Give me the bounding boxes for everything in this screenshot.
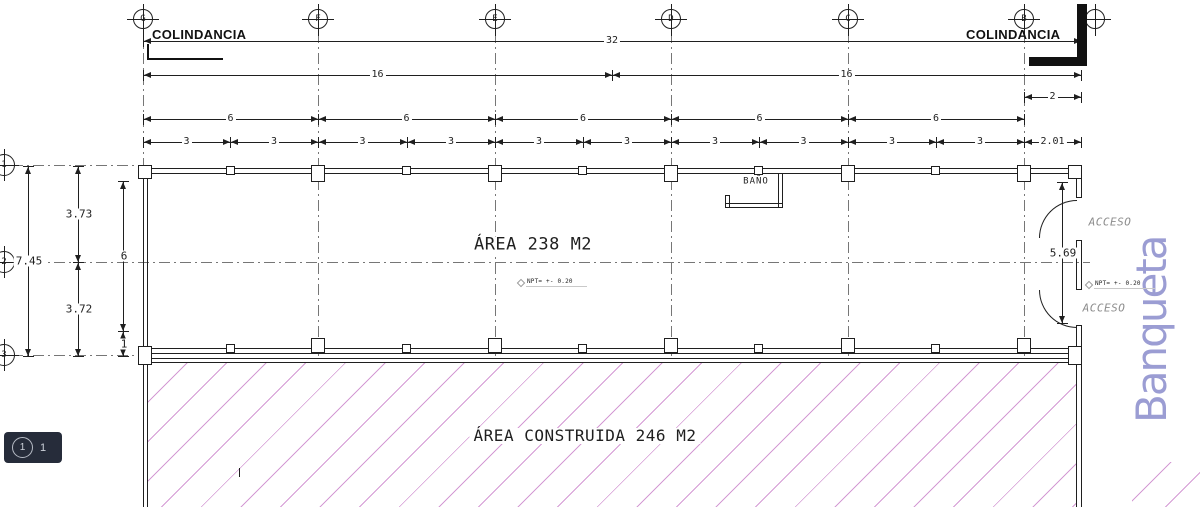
area-construida-label: ÁREA CONSTRUIDA 246 M2	[470, 428, 701, 444]
wall-segment	[1076, 240, 1082, 241]
wall-segment	[143, 353, 1081, 354]
level-marker-icon	[517, 279, 525, 287]
dim-value: 6	[119, 251, 130, 262]
dim-value: 3.72	[64, 304, 95, 315]
wall-segment	[143, 348, 1081, 349]
wall-segment	[725, 195, 726, 207]
dim-extension-tick	[118, 356, 129, 357]
sheet-number-value: 1	[40, 442, 46, 454]
column	[402, 344, 411, 353]
column	[664, 165, 678, 182]
dim-arrow	[311, 139, 318, 145]
grid-centerline-vertical	[848, 32, 849, 356]
dim-arrow	[1017, 139, 1024, 145]
dim-arrow	[311, 116, 318, 122]
banqueta-label: Banqueta	[1127, 243, 1177, 423]
npt-center-text: NPT= +- 0.20	[526, 279, 587, 287]
column	[138, 346, 152, 365]
column	[754, 166, 763, 175]
dim-value: 3	[269, 137, 279, 147]
wall-segment	[1076, 325, 1082, 326]
dim-value: 3	[181, 137, 191, 147]
dim-value: 3	[887, 137, 897, 147]
grid-centerline-vertical	[495, 32, 496, 356]
grid-bubble-tick	[655, 19, 687, 20]
dim-extension-tick	[1081, 92, 1082, 103]
level-marker-icon	[1085, 281, 1093, 289]
acceso-lower-label: ACCESO	[1083, 303, 1126, 314]
wall-segment	[143, 168, 1081, 169]
dim-arrow	[672, 116, 679, 122]
dim-value: 16	[838, 70, 854, 80]
dim-arrow	[605, 72, 612, 78]
dim-extension-tick	[1081, 137, 1082, 148]
grid-bubble-tick	[143, 4, 144, 36]
wall-segment	[778, 173, 779, 207]
column	[931, 166, 940, 175]
column	[1068, 346, 1082, 365]
npt-right-annotation: NPT= +- 0.20	[1086, 281, 1155, 289]
grid-bubble-tick	[4, 246, 5, 278]
dim-value: 3	[710, 137, 720, 147]
dim-arrow	[319, 116, 326, 122]
wall-segment	[725, 203, 783, 204]
dim-arrow	[231, 139, 238, 145]
column	[578, 344, 587, 353]
floorplan-canvas: COLINDANCIA COLINDANCIA ÁREA 238 M2 ÁREA…	[0, 0, 1200, 507]
dim-arrow	[488, 139, 495, 145]
dim-extension-tick	[23, 356, 34, 357]
dim-arrow	[584, 139, 591, 145]
wall-segment	[143, 362, 1081, 363]
dim-arrow	[1059, 183, 1065, 190]
npt-right-text: NPT= +- 0.20	[1094, 281, 1155, 289]
dim-arrow	[400, 139, 407, 145]
dim-value: 6	[401, 114, 411, 124]
grid-centerline-horizontal	[12, 262, 1090, 263]
column	[1017, 165, 1031, 182]
boundary-corner-left-horizontal	[147, 58, 223, 60]
grid-centerline-vertical	[671, 32, 672, 356]
dim-arrow	[75, 263, 81, 270]
dim-arrow	[1025, 139, 1032, 145]
grid-bubble-tick	[495, 4, 496, 36]
dim-arrow	[319, 139, 326, 145]
dim-arrow	[75, 255, 81, 262]
dim-arrow	[144, 139, 151, 145]
dim-arrow	[672, 139, 679, 145]
column	[488, 165, 502, 182]
dim-arrow	[841, 139, 848, 145]
grid-bubble-tick	[318, 4, 319, 36]
dim-arrow	[75, 167, 81, 174]
grid-bubble-tick	[671, 4, 672, 36]
column	[841, 338, 855, 353]
wall-segment	[725, 207, 783, 208]
grid-bubble-tick	[4, 149, 5, 181]
grid-bubble-tick	[127, 19, 159, 20]
wall-segment	[143, 168, 144, 507]
grid-bubble-tick	[4, 339, 5, 371]
dim-arrow	[1059, 316, 1065, 323]
dim-extension-tick	[1081, 70, 1082, 81]
dim-arrow	[25, 167, 31, 174]
dim-arrow	[144, 116, 151, 122]
dim-arrow	[929, 139, 936, 145]
dim-arrow	[1074, 94, 1081, 100]
column	[1017, 338, 1031, 353]
dim-extension-tick	[1057, 323, 1068, 324]
dim-arrow	[841, 116, 848, 122]
grid-bubble-tick	[1008, 19, 1040, 20]
dim-value: 6	[931, 114, 941, 124]
dim-arrow	[1017, 116, 1024, 122]
dim-arrow	[120, 349, 126, 356]
wall-segment	[725, 195, 730, 196]
dim-value: 16	[369, 70, 385, 80]
dim-arrow	[496, 139, 503, 145]
dim-value: 3	[446, 137, 456, 147]
dim-value: 1	[119, 338, 130, 349]
grid-bubble-tick	[479, 19, 511, 20]
column	[1068, 165, 1082, 179]
grid-bubble-tick	[1095, 4, 1096, 36]
dim-value: 3	[622, 137, 632, 147]
dim-arrow	[752, 139, 759, 145]
dim-extension-tick	[1024, 114, 1025, 125]
grid-bubble-tick	[0, 355, 19, 356]
dim-arrow	[664, 139, 671, 145]
dim-value: 3	[534, 137, 544, 147]
dim-value: 2	[1047, 92, 1057, 102]
area-main-label: ÁREA 238 M2	[471, 237, 595, 254]
dim-value: 7.45	[14, 256, 45, 267]
dim-arrow	[937, 139, 944, 145]
dim-arrow	[223, 139, 230, 145]
dim-value: 6	[578, 114, 588, 124]
grid-bubble-tick	[302, 19, 334, 20]
column	[311, 165, 325, 182]
dim-value: 32	[604, 36, 620, 46]
grid-centerline-vertical	[318, 32, 319, 356]
dim-arrow	[849, 139, 856, 145]
dim-value: 5.69	[1048, 247, 1079, 258]
wall-segment	[1076, 197, 1082, 198]
bano-label: BAÑO	[741, 178, 771, 187]
wall-segment	[782, 173, 783, 207]
column	[841, 165, 855, 182]
grid-bubble-tick	[848, 4, 849, 36]
column	[578, 166, 587, 175]
dim-arrow	[144, 72, 151, 78]
sheet-number-circle: 1	[12, 437, 33, 458]
colindancia-left-label: COLINDANCIA	[152, 28, 246, 41]
dim-extension-tick	[73, 356, 84, 357]
dim-value: 6	[225, 114, 235, 124]
dim-arrow	[496, 116, 503, 122]
npt-center-annotation: NPT= +- 0.20	[518, 279, 587, 287]
wall-segment	[147, 168, 148, 507]
dim-value: 6	[754, 114, 764, 124]
dim-arrow	[75, 349, 81, 356]
column	[226, 166, 235, 175]
column	[931, 344, 940, 353]
dim-value: 3	[798, 137, 808, 147]
wall-segment	[1076, 289, 1082, 290]
wall-segment	[143, 173, 1081, 174]
grid-bubble-tick	[832, 19, 864, 20]
dim-value: 3.73	[64, 209, 95, 220]
hatch-corner-fragment	[1132, 462, 1200, 507]
acceso-upper-label: ACCESO	[1089, 217, 1132, 228]
dim-arrow	[1074, 139, 1081, 145]
dim-value: 3	[357, 137, 367, 147]
colindancia-right-label: COLINDANCIA	[966, 28, 1060, 41]
dim-arrow	[120, 324, 126, 331]
dim-arrow	[760, 139, 767, 145]
dim-arrow	[488, 116, 495, 122]
dim-arrow	[1074, 72, 1081, 78]
grid-centerline-vertical	[1024, 32, 1025, 356]
dim-arrow	[120, 182, 126, 189]
dim-arrow	[849, 116, 856, 122]
dim-arrow	[613, 72, 620, 78]
wall-segment	[729, 195, 730, 207]
column	[488, 338, 502, 353]
dim-value: 2.01	[1038, 137, 1066, 147]
dim-arrow	[664, 116, 671, 122]
boundary-corner-right-horizontal	[1029, 57, 1087, 66]
dim-arrow	[576, 139, 583, 145]
dim-arrow	[1025, 94, 1032, 100]
door-swing-arc	[1039, 200, 1077, 238]
wall-segment	[143, 358, 1081, 359]
wall-segment	[1081, 240, 1082, 290]
column	[754, 344, 763, 353]
dim-value: 3	[975, 137, 985, 147]
column	[226, 344, 235, 353]
dim-arrow	[25, 349, 31, 356]
column	[664, 338, 678, 353]
column	[138, 165, 152, 179]
grid-bubble-tick	[0, 165, 19, 166]
dim-arrow	[408, 139, 415, 145]
sheet-badge[interactable]: 1 1	[4, 432, 62, 463]
column	[311, 338, 325, 353]
column	[402, 166, 411, 175]
wall-segment	[239, 468, 240, 477]
